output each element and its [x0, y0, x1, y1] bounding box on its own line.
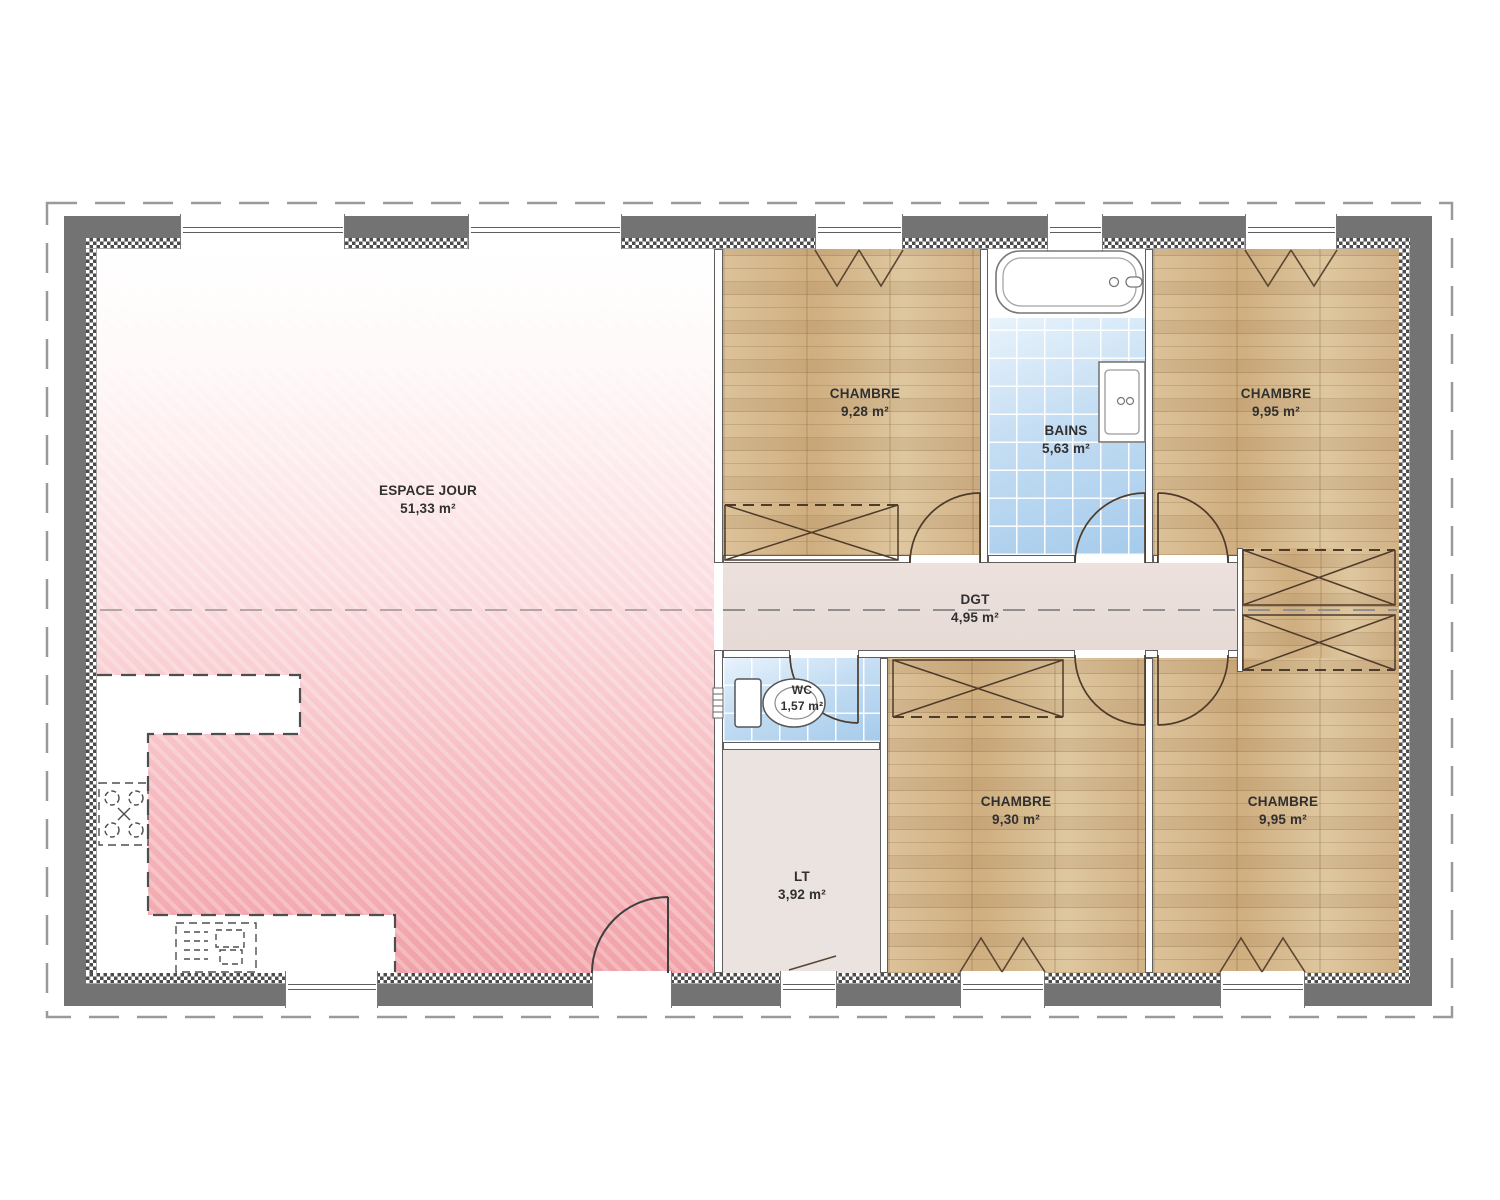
window-chambre-2	[1245, 214, 1337, 249]
room-name: CHAMBRE	[1176, 385, 1376, 403]
wall-bains-chambre2	[1145, 249, 1153, 563]
label-chambre-3: CHAMBRE 9,30 m²	[916, 793, 1116, 828]
corridor-threshold	[714, 563, 723, 650]
room-name: ESPACE JOUR	[328, 482, 528, 500]
kitchen-counter-area	[97, 915, 395, 973]
room-area: 4,95 m²	[875, 609, 1075, 627]
label-chambre-2: CHAMBRE 9,95 m²	[1176, 385, 1376, 420]
room-area: 1,57 m²	[742, 699, 862, 715]
entrance-door-opening	[592, 971, 672, 1008]
wall-corridor-right	[1237, 548, 1243, 672]
room-name: CHAMBRE	[1183, 793, 1383, 811]
window-lingerie	[780, 971, 837, 1008]
label-espace-jour: ESPACE JOUR 51,33 m²	[328, 482, 528, 517]
wall-divider-top	[714, 249, 723, 563]
wall-divider-bottom	[714, 650, 723, 973]
insulation-left	[86, 249, 97, 973]
wall-wc-lt	[723, 742, 880, 750]
room-name: LT	[702, 868, 902, 886]
label-degagement: DGT 4,95 m²	[875, 591, 1075, 626]
window-chambre-1	[815, 214, 903, 249]
corridor-closet-zone	[1237, 548, 1399, 672]
floor-plan: ESPACE JOUR 51,33 m² CHAMBRE 9,28 m² BAI…	[0, 0, 1500, 1200]
window-chambre-4	[1220, 971, 1305, 1008]
label-chambre-1: CHAMBRE 9,28 m²	[765, 385, 965, 420]
room-name: BAINS	[986, 422, 1146, 440]
room-area: 51,33 m²	[328, 500, 528, 518]
label-lingerie: LT 3,92 m²	[702, 868, 902, 903]
window-living-3	[285, 971, 378, 1008]
room-name: WC	[742, 683, 862, 699]
room-name: CHAMBRE	[765, 385, 965, 403]
label-chambre-4: CHAMBRE 9,95 m²	[1183, 793, 1383, 828]
room-name: DGT	[875, 591, 1075, 609]
wall-chambre4-top-stub	[1145, 650, 1158, 658]
kitchen-counter-area	[97, 675, 300, 734]
room-area: 9,28 m²	[765, 403, 965, 421]
window-living-1	[180, 214, 345, 249]
wall-wc-chambre3	[880, 658, 888, 973]
wall-chambre1-bottom	[723, 555, 910, 563]
label-bains: BAINS 5,63 m²	[986, 422, 1146, 457]
room-espace-jour	[97, 249, 714, 973]
room-name: CHAMBRE	[916, 793, 1116, 811]
room-area: 9,95 m²	[1183, 811, 1383, 829]
wall-bains-bottom	[988, 555, 1075, 563]
window-bains	[1047, 214, 1103, 249]
room-area: 5,63 m²	[986, 440, 1146, 458]
room-area: 9,95 m²	[1176, 403, 1376, 421]
wall-corridor-bottom	[858, 650, 1075, 658]
wall-corridor-bottom	[723, 650, 790, 658]
insulation-right	[1399, 249, 1410, 973]
window-living-2	[468, 214, 622, 249]
wall-chambre1-bains	[980, 249, 988, 563]
wall-chambre2-bottom-stub	[1153, 555, 1158, 563]
room-lingerie	[723, 750, 880, 973]
label-wc: WC 1,57 m²	[742, 683, 862, 714]
room-area: 9,30 m²	[916, 811, 1116, 829]
window-chambre-3	[960, 971, 1045, 1008]
wall-chambre3-chambre4	[1145, 658, 1153, 973]
room-area: 3,92 m²	[702, 886, 902, 904]
